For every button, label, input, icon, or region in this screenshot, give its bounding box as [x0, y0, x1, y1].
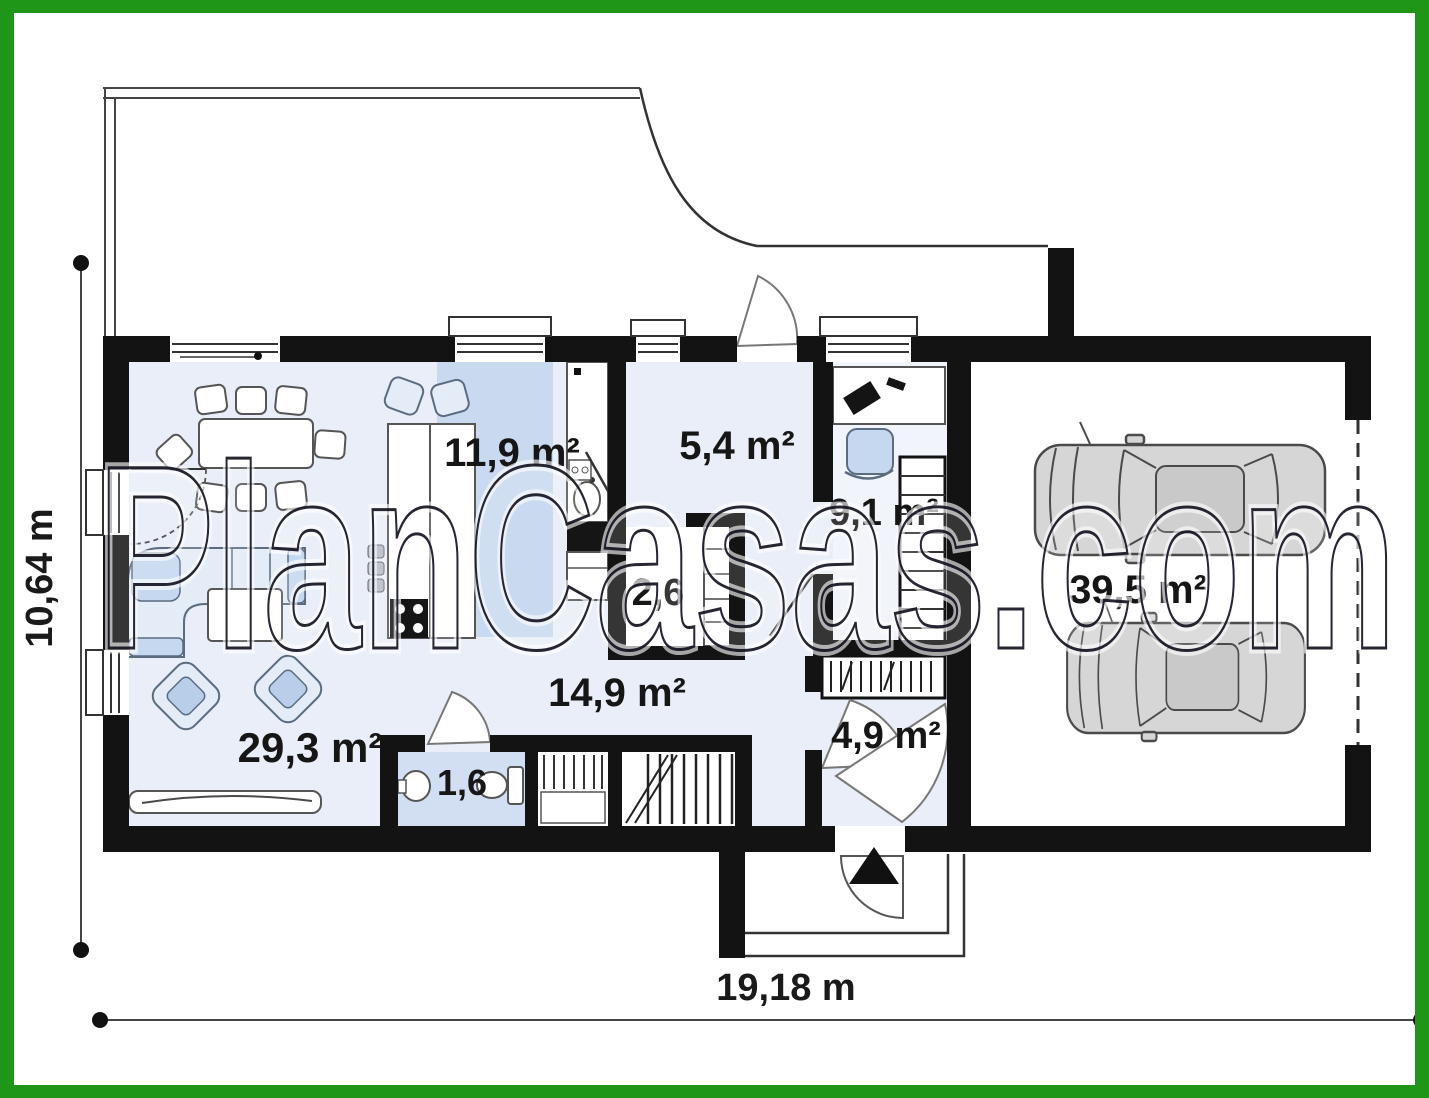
living-room-area-label: 29,3 m² — [238, 724, 383, 771]
wc-area-label: 1,6 — [437, 762, 487, 803]
terrace-outline — [103, 88, 1048, 336]
window — [820, 317, 917, 362]
floor-plan-image: 29,3 m² 11,9 m² 5,4 m² 2,6 14,9 m² 9,1 m… — [0, 0, 1429, 1098]
window — [170, 336, 280, 362]
watermark: PlanCasas.com PlanCasas.com — [97, 411, 1397, 704]
tv-bench — [129, 791, 321, 813]
terrace-door-swing — [737, 276, 797, 346]
total-width-dimension: 19,18 m — [716, 967, 855, 1009]
watermark-text: PlanCasas.com — [97, 411, 1397, 704]
toilet-icon — [508, 767, 523, 804]
window — [449, 317, 551, 362]
window — [631, 320, 685, 362]
car-mirror — [1142, 732, 1157, 741]
vestibule-area-label: 4,9 m² — [831, 715, 941, 757]
chair — [236, 387, 266, 414]
total-depth-dimension: 10,64 m — [19, 508, 61, 647]
